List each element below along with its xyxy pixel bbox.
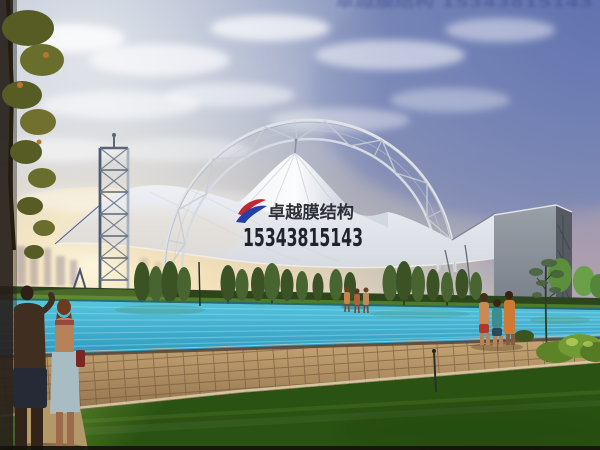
watermark-brand-text: 卓越膜结构 <box>268 202 354 223</box>
mid-swimmers <box>341 287 369 314</box>
rendering-image: 卓越膜结构 15343815143 <box>0 0 600 450</box>
watermark: 卓越膜结构 15343815143 <box>236 199 363 252</box>
watermark-phone-text: 15343815143 <box>243 223 363 252</box>
bottom-strip <box>0 446 600 450</box>
top-watermark-text: 卓越膜结构 15343815143 <box>335 0 593 11</box>
